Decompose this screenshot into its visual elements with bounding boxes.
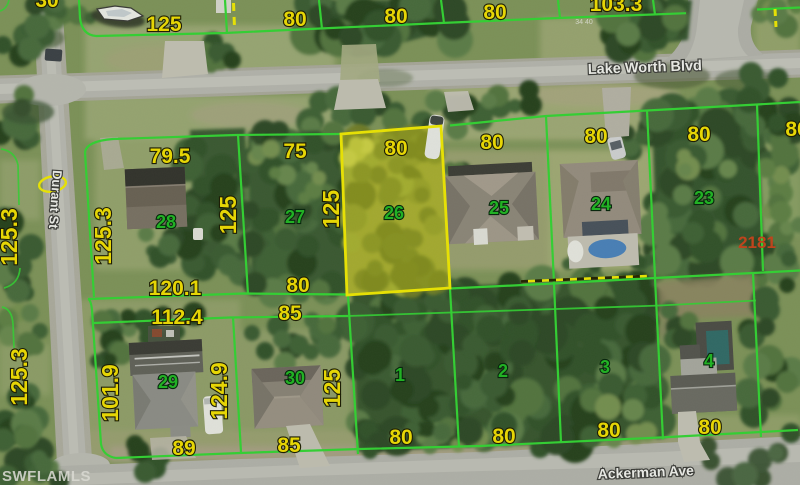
svg-text:SWFLAMLS: SWFLAMLS [2, 468, 91, 485]
